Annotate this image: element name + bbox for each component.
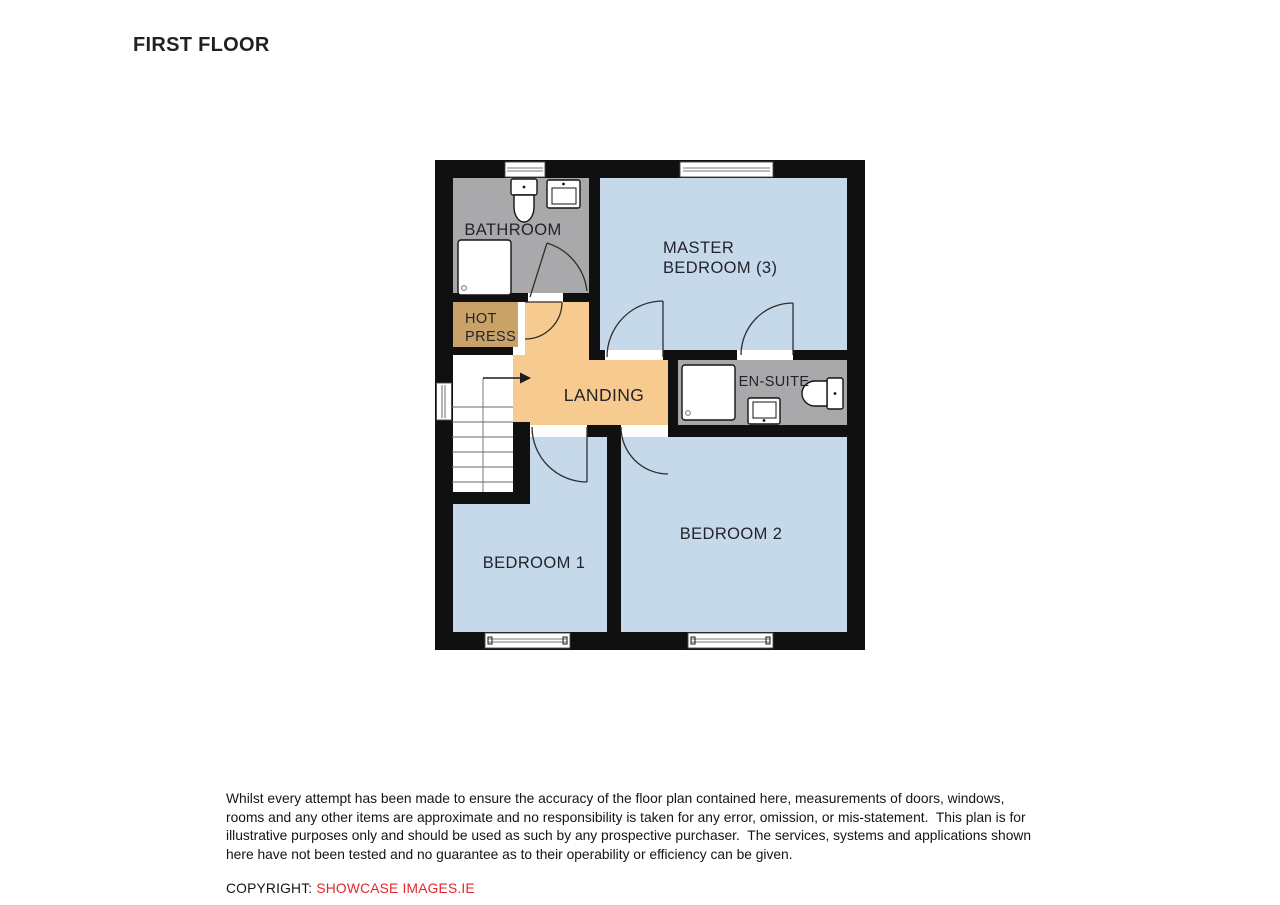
room-label-bedroom-1: BEDROOM 1 xyxy=(483,554,586,572)
room-label-hot-press-line2: PRESS xyxy=(465,329,516,345)
room-label-master-line1: MASTER xyxy=(663,239,734,257)
room-label-hot-press-line1: HOT xyxy=(465,311,497,327)
disclaimer-line: rooms and any other items are approximat… xyxy=(226,809,1056,828)
disclaimer-text: Whilst every attempt has been made to en… xyxy=(226,790,1056,864)
copyright-line: COPYRIGHT: SHOWCASE IMAGES.IE xyxy=(226,881,475,896)
disclaimer-line: illustrative purposes only and should be… xyxy=(226,827,1056,846)
floor-plan: BATHROOM MASTER BEDROOM (3) HOT PRESS LA… xyxy=(435,160,865,650)
room-label-en-suite: EN-SUITE xyxy=(739,374,810,390)
room-label-landing: LANDING xyxy=(564,385,645,405)
shower-tray-icon xyxy=(458,240,511,295)
stairwell-floor xyxy=(452,355,513,492)
shower-tray-icon xyxy=(682,365,735,420)
window-icon xyxy=(680,162,773,177)
disclaimer-line: Whilst every attempt has been made to en… xyxy=(226,790,1056,809)
window-icon xyxy=(437,383,452,420)
copyright-label: COPYRIGHT: xyxy=(226,881,316,896)
window-icon xyxy=(505,162,545,177)
disclaimer-line: here have not been tested and no guarant… xyxy=(226,846,1056,865)
window-icon xyxy=(485,633,570,648)
room-label-bathroom: BATHROOM xyxy=(464,221,561,239)
page-title: FIRST FLOOR xyxy=(133,34,270,57)
sink-icon xyxy=(547,180,580,208)
room-label-master-line2: BEDROOM (3) xyxy=(663,259,777,277)
window-icon xyxy=(688,633,773,648)
room-label-bedroom-2: BEDROOM 2 xyxy=(680,525,783,543)
sink-icon xyxy=(748,398,780,424)
copyright-source: SHOWCASE IMAGES.IE xyxy=(316,881,474,896)
